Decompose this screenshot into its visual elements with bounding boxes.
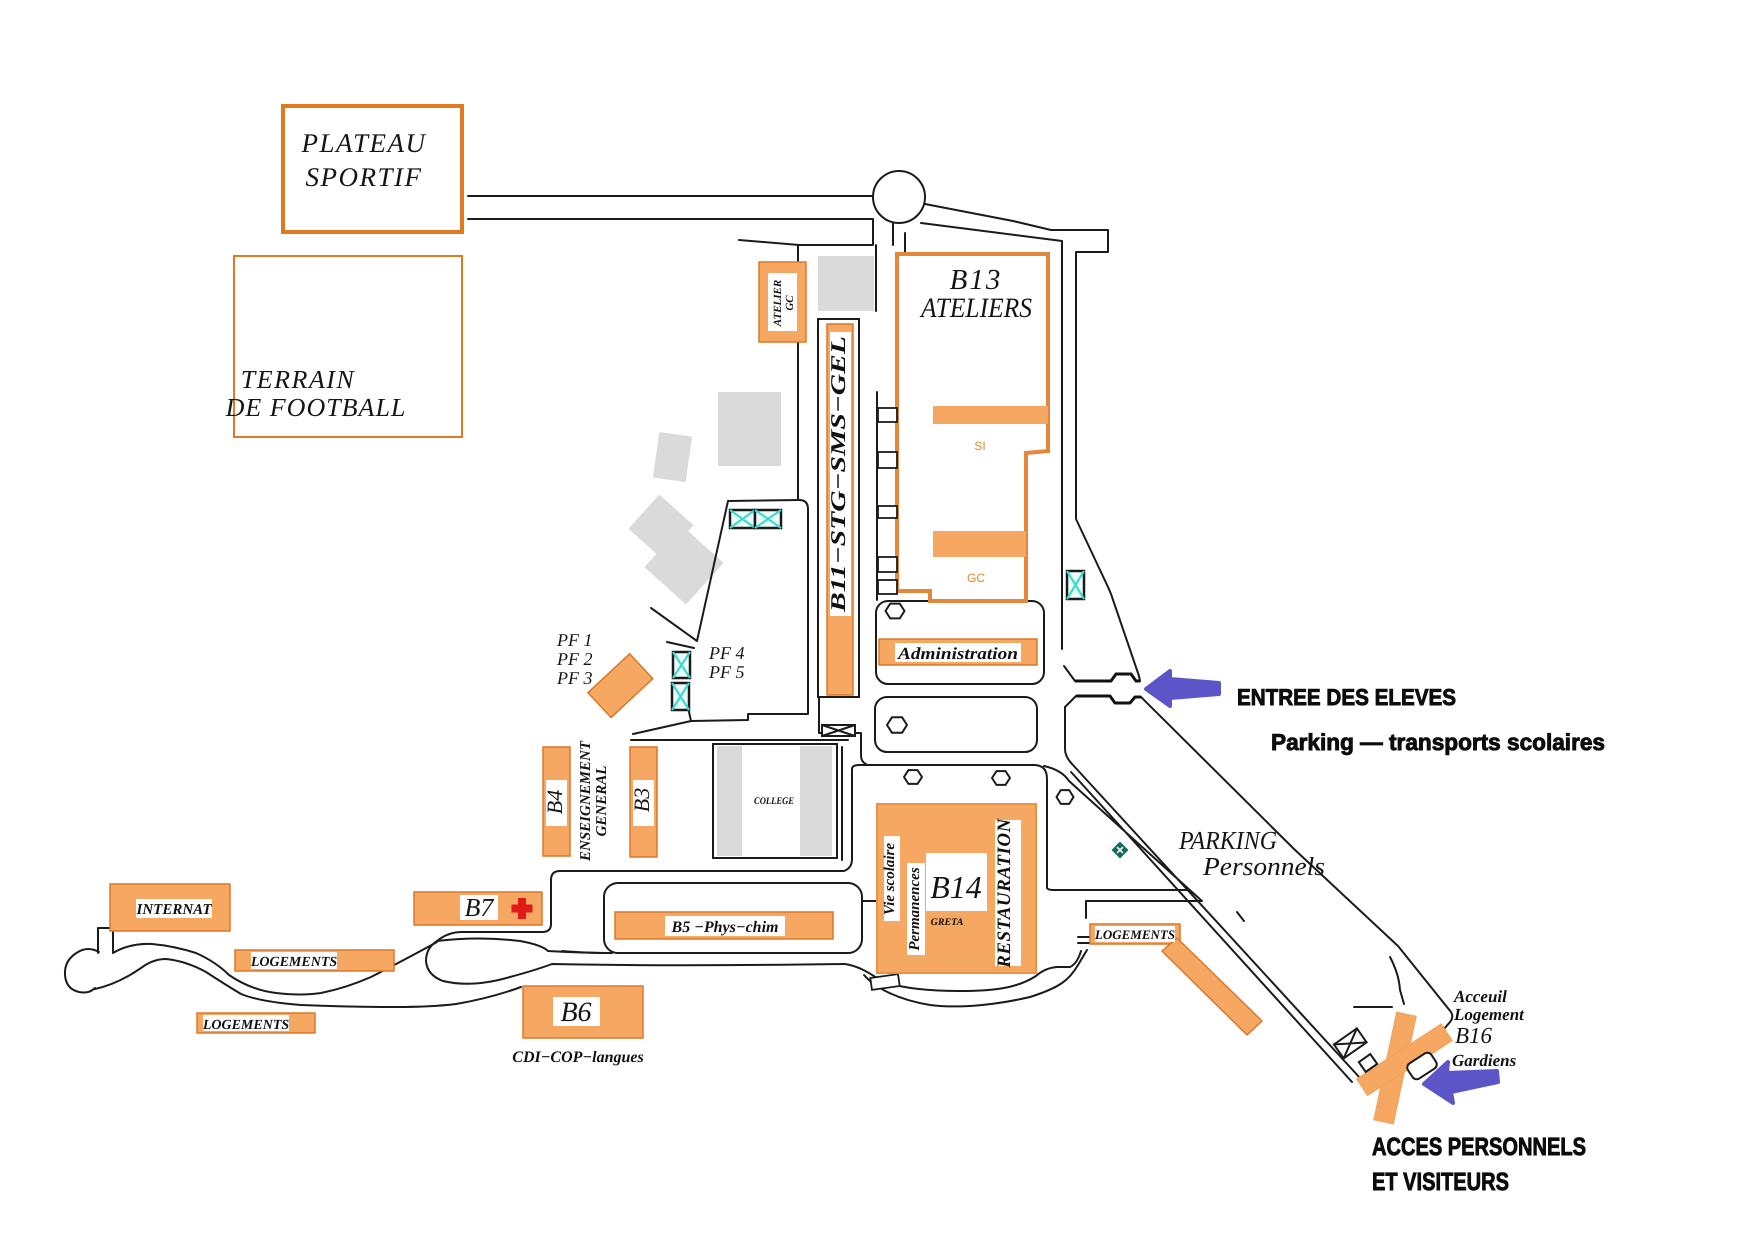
svg-text:Personnels: Personnels [1202,852,1325,881]
svg-text:B6: B6 [560,997,591,1028]
svg-text:ENSEIGNEMENT: ENSEIGNEMENT [578,740,594,862]
svg-text:RESTAURATION: RESTAURATION [994,817,1015,968]
svg-text:ATELIERS: ATELIERS [919,293,1032,324]
svg-text:Acceuil: Acceuil [1453,987,1507,1006]
svg-text:Gardiens: Gardiens [1452,1051,1517,1070]
svg-text:B5 −Phys−chim: B5 −Phys−chim [671,919,779,936]
svg-text:B16: B16 [1455,1023,1493,1048]
svg-text:ATELIER: ATELIER [772,280,784,327]
svg-text:LOGEMENTS: LOGEMENTS [202,1018,290,1033]
svg-text:SI: SI [974,439,985,453]
svg-text:GRETA: GRETA [931,917,964,928]
svg-text:LOGEMENTS: LOGEMENTS [1094,927,1175,942]
svg-text:TERRAIN: TERRAIN [241,365,356,394]
svg-text:B3: B3 [629,788,654,812]
svg-text:B11−STG−SMS−GEL: B11−STG−SMS−GEL [826,336,850,613]
svg-text:Parking — transports scolai: Parking — transports scolaires [1271,729,1605,755]
svg-text:GC: GC [784,295,796,311]
svg-text:ACCES PERSONNELS: ACCES PERSONNELS [1372,1133,1586,1161]
svg-text:B7: B7 [465,893,495,922]
svg-text:PARKING: PARKING [1178,826,1277,855]
svg-text:PF 3: PF 3 [556,668,593,688]
svg-text:B13: B13 [950,264,1003,296]
svg-text:GENERAL: GENERAL [594,766,610,837]
svg-text:Logement: Logement [1453,1005,1525,1024]
svg-text:B4: B4 [542,790,567,814]
svg-text:COLLEGE: COLLEGE [754,796,794,807]
svg-text:Permanences: Permanences [907,867,923,950]
svg-text:LOGEMENTS: LOGEMENTS [250,955,338,970]
svg-text:PF 2: PF 2 [556,649,593,669]
svg-text:PF 4: PF 4 [708,643,745,663]
svg-text:ET VISITEURS: ET VISITEURS [1372,1168,1509,1196]
svg-text:PF 5: PF 5 [708,662,745,682]
svg-text:GC: GC [967,571,985,585]
svg-text:Vie scolaire: Vie scolaire [882,843,898,915]
svg-text:Administration: Administration [897,644,1018,663]
svg-text:PLATEAU: PLATEAU [301,128,427,158]
svg-text:B14: B14 [930,869,982,905]
svg-text:PF 1: PF 1 [556,630,593,650]
svg-text:INTERNAT: INTERNAT [135,902,212,918]
svg-text:ENTREE DES ELEVES: ENTREE DES ELEVES [1237,684,1456,710]
svg-text:SPORTIF: SPORTIF [306,162,423,192]
svg-text:CDI−COP−langues: CDI−COP−langues [512,1049,643,1066]
svg-text:DE FOOTBALL: DE FOOTBALL [225,393,407,422]
